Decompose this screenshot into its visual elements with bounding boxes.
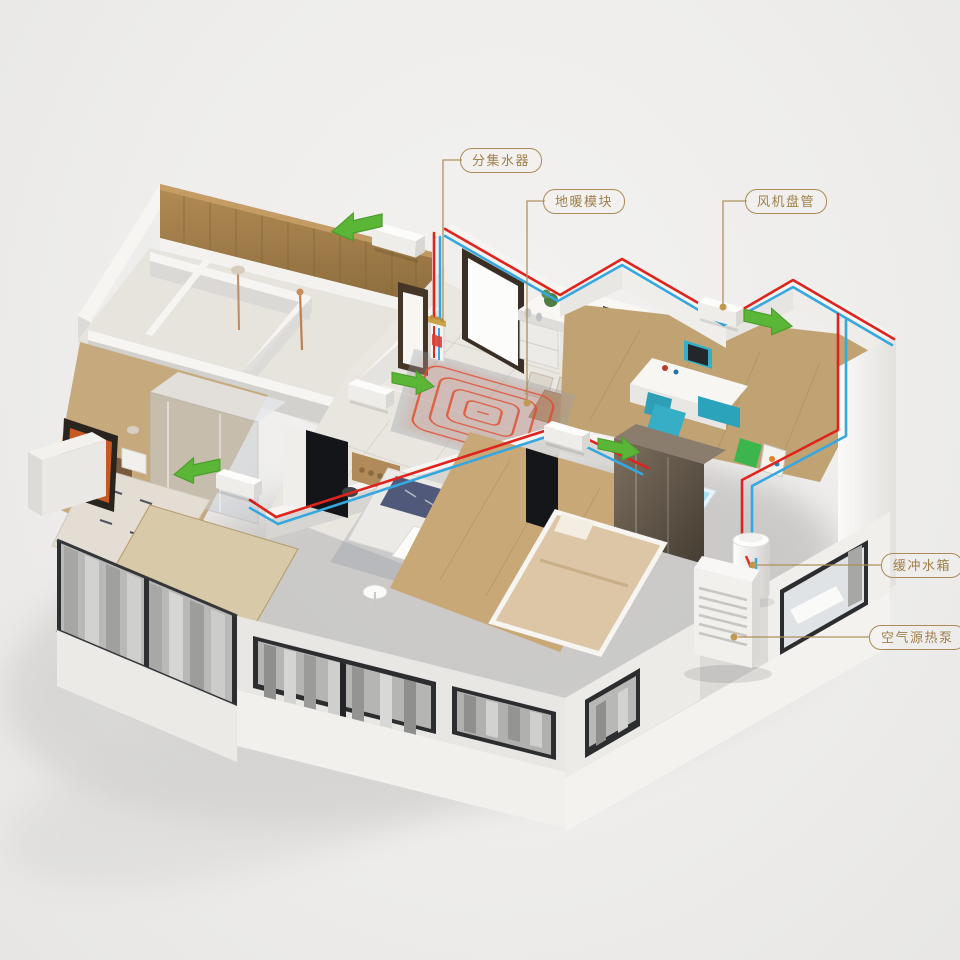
anchor-dot-floor-heating (524, 400, 531, 407)
hvac-floorplan-illustration: 分集水器 地暖模块 风机盘管 缓冲水箱 空气源热泵 (0, 0, 960, 960)
manifold-device (428, 315, 446, 362)
callout-manifold: 分集水器 (460, 148, 542, 173)
anchor-dot-fan-coil (720, 304, 727, 311)
callout-buffer-tank: 缓冲水箱 (881, 553, 960, 578)
leader-fan-coil (723, 201, 747, 304)
anchor-dot-heat-pump (731, 634, 738, 641)
callout-fan-coil-unit: 风机盘管 (745, 189, 827, 214)
anchor-dot-buffer-tank (750, 562, 757, 569)
isometric-apartment-scene (0, 0, 960, 960)
callout-air-source-heat-pump: 空气源热泵 (869, 625, 960, 650)
callout-floor-heating-module: 地暖模块 (543, 189, 625, 214)
